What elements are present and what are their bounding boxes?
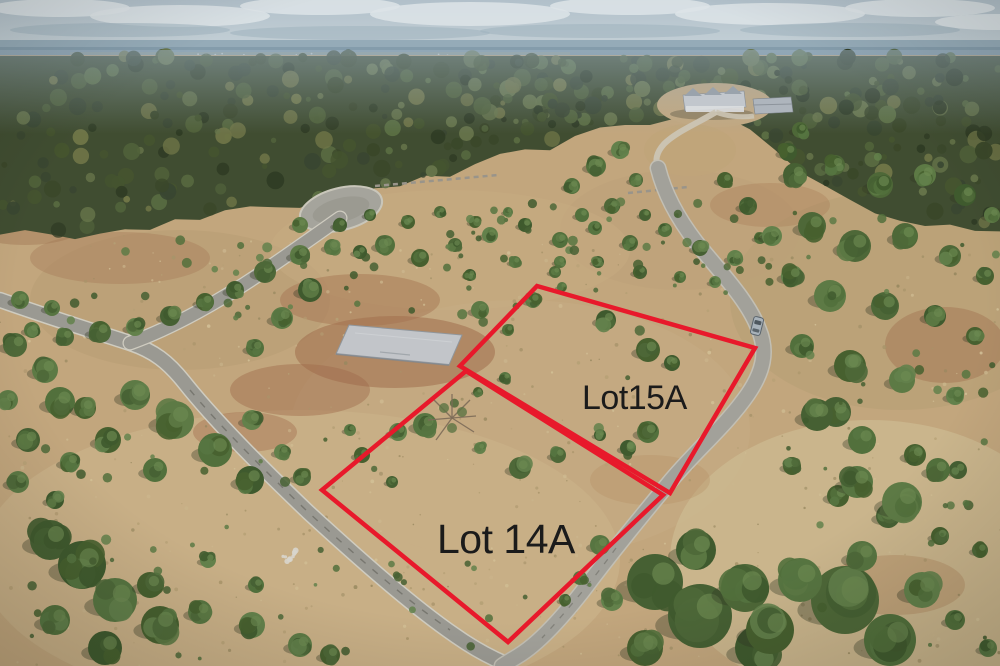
aerial-photo-frame: Lot15A Lot 14A [0,0,1000,666]
aerial-lot-photo: Lot15A Lot 14A [0,0,1000,666]
lot-15a-label: Lot15A [582,379,688,417]
vignette [0,0,1000,666]
lot-14a-label: Lot 14A [437,516,576,562]
